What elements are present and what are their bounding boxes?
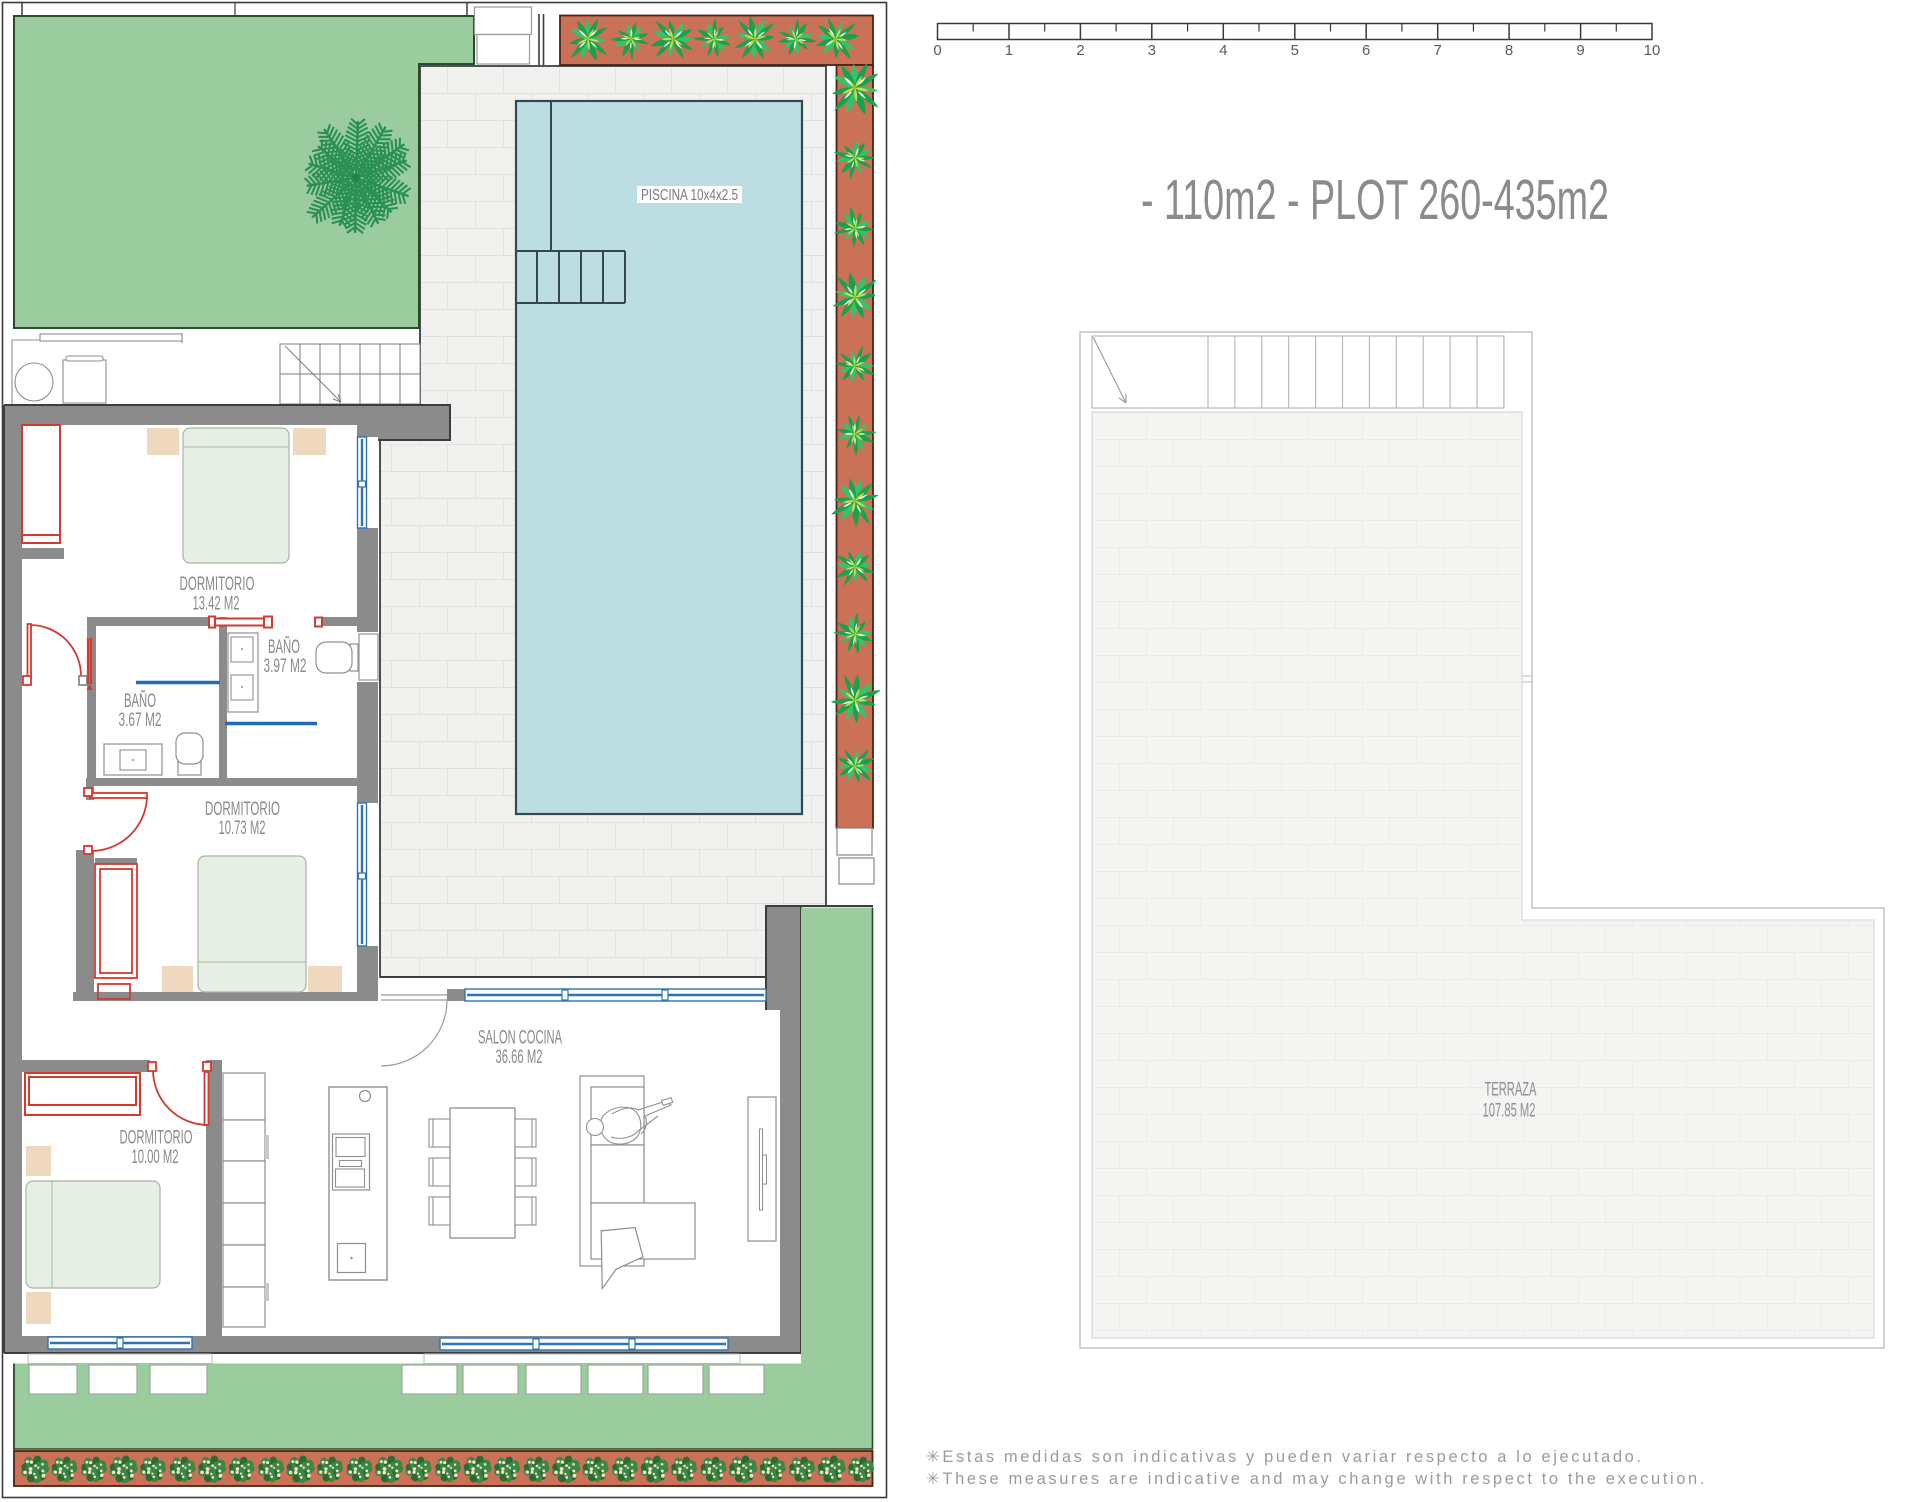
svg-text:10: 10: [1644, 42, 1661, 59]
svg-text:36.66 M2: 36.66 M2: [496, 1047, 543, 1068]
svg-text:PISCINA 10x4x2.5: PISCINA 10x4x2.5: [641, 187, 738, 204]
svg-text:10.00 M2: 10.00 M2: [132, 1147, 179, 1168]
svg-text:13.42 M2: 13.42 M2: [193, 594, 240, 615]
svg-text:SALON COCINA: SALON COCINA: [478, 1028, 562, 1049]
svg-text:DORMITORIO: DORMITORIO: [205, 799, 280, 820]
svg-text:4: 4: [1219, 42, 1227, 59]
svg-text:10.73 M2: 10.73 M2: [219, 818, 266, 839]
svg-text:DORMITORIO: DORMITORIO: [180, 574, 255, 595]
svg-text:107.85 M2: 107.85 M2: [1483, 1100, 1536, 1121]
svg-text:BAÑO: BAÑO: [124, 690, 156, 712]
svg-text:8: 8: [1505, 42, 1513, 59]
svg-text:0: 0: [933, 42, 941, 59]
svg-text:3.67 M2: 3.67 M2: [119, 710, 162, 731]
svg-text:- 110m2 - PLOT 260-435m2: - 110m2 - PLOT 260-435m2: [1141, 168, 1609, 232]
svg-text:5: 5: [1291, 42, 1299, 59]
svg-text:9: 9: [1576, 42, 1584, 59]
svg-text:TERRAZA: TERRAZA: [1485, 1080, 1537, 1101]
svg-text:✳Estas medidas son indicativas: ✳Estas medidas son indicativas y pueden …: [926, 1448, 1644, 1466]
svg-text:7: 7: [1433, 42, 1441, 59]
svg-text:3.97 M2: 3.97 M2: [264, 656, 307, 677]
svg-text:✳These measures are indicative: ✳These measures are indicative and may c…: [926, 1470, 1707, 1488]
svg-text:DORMITORIO: DORMITORIO: [120, 1128, 193, 1149]
svg-text:6: 6: [1362, 42, 1370, 59]
svg-text:3: 3: [1148, 42, 1156, 59]
svg-text:BAÑO: BAÑO: [268, 636, 300, 658]
svg-text:1: 1: [1005, 42, 1013, 59]
svg-text:2: 2: [1076, 42, 1084, 59]
